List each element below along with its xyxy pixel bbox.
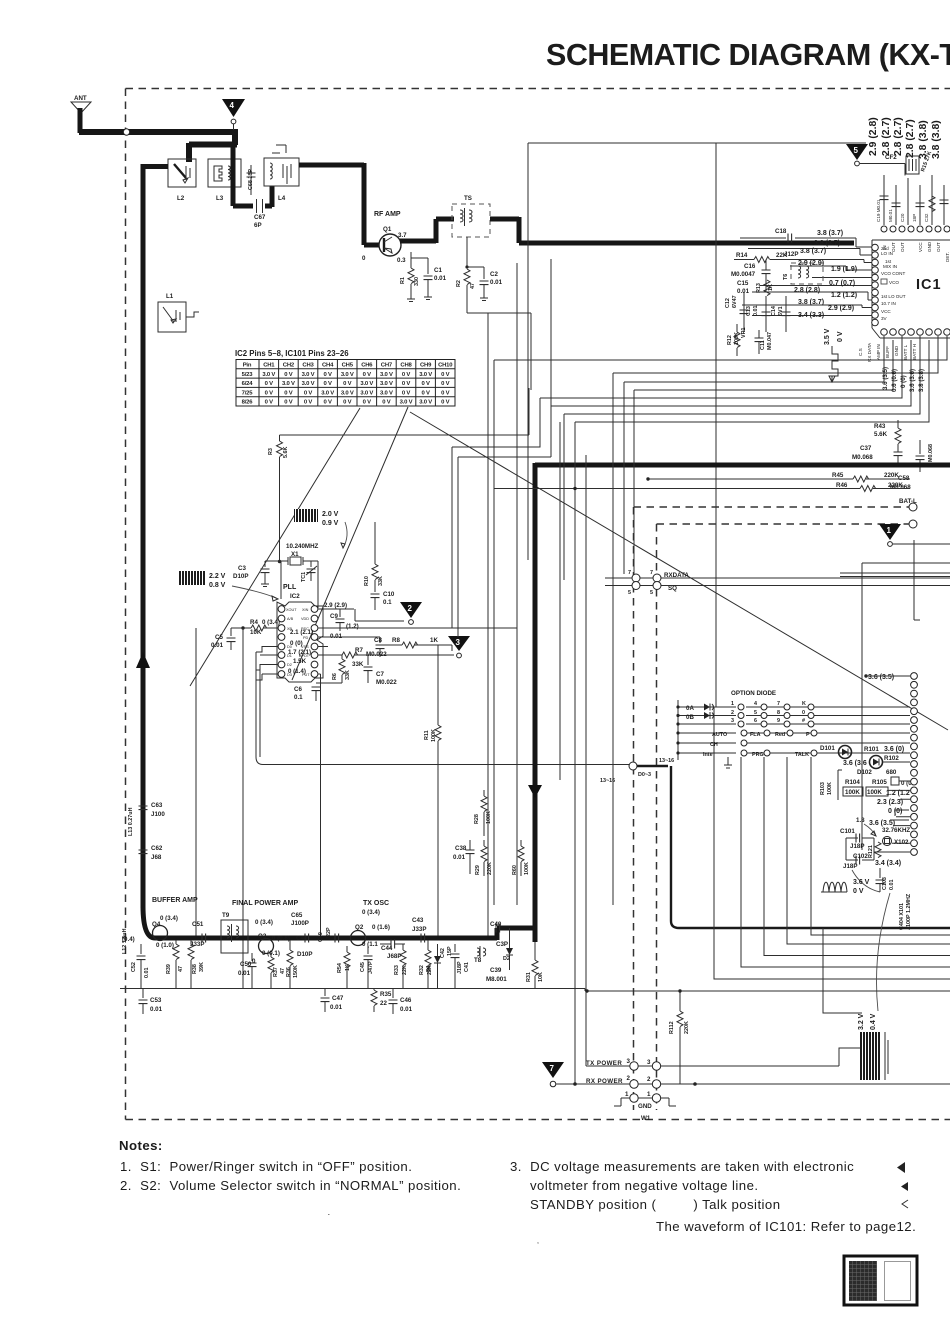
- svg-text:X102: X102: [894, 839, 909, 846]
- svg-text:D102: D102: [857, 769, 872, 776]
- svg-text:C39: C39: [490, 967, 502, 974]
- svg-text:0 (0): 0 (0): [290, 640, 303, 647]
- svg-text:C42: C42: [440, 948, 446, 958]
- svg-text:MIX IN: MIX IN: [883, 264, 897, 269]
- svg-text:3.0 V: 3.0 V: [380, 372, 393, 378]
- svg-text:C13: C13: [746, 306, 752, 316]
- svg-text:1st LO OUT: 1st LO OUT: [881, 294, 906, 299]
- svg-text:0 (3.4): 0 (3.4): [255, 919, 273, 926]
- svg-text:18P: 18P: [912, 214, 917, 222]
- svg-text:D10P: D10P: [297, 951, 312, 958]
- svg-text:3.6 (3.5): 3.6 (3.5): [869, 820, 895, 827]
- svg-text:1.2 (1.2): 1.2 (1.2): [831, 292, 857, 299]
- svg-text:IC2 Pins 5–8, IC101 Pins 23–26: IC2 Pins 5–8, IC101 Pins 23–26: [235, 349, 349, 358]
- svg-text:RX DATA: RX DATA: [867, 342, 872, 362]
- svg-text:R32: R32: [419, 965, 425, 975]
- svg-text:P: P: [806, 732, 810, 738]
- svg-text:2: 2: [731, 710, 734, 716]
- svg-text:CH2: CH2: [283, 363, 295, 369]
- svg-text:CH7: CH7: [381, 363, 393, 369]
- svg-text:2.8 (2.7): 2.8 (2.7): [905, 119, 916, 158]
- svg-text:J33P: J33P: [190, 941, 204, 948]
- svg-text:FLA: FLA: [750, 732, 761, 738]
- svg-text:C19 M0.01: C19 M0.01: [876, 199, 881, 222]
- svg-text:0 V: 0 V: [382, 400, 391, 406]
- svg-text:C53: C53: [150, 997, 162, 1004]
- svg-text:CH10: CH10: [438, 363, 453, 369]
- svg-text:J47P: J47P: [368, 961, 374, 974]
- svg-text:R103: R103: [820, 782, 826, 795]
- svg-text:A/B: A/B: [287, 617, 294, 621]
- svg-text:0 V: 0 V: [441, 381, 450, 387]
- svg-text:FINAL POWER AMP: FINAL POWER AMP: [232, 900, 298, 907]
- svg-text:100K: 100K: [431, 729, 437, 742]
- svg-text:5: 5: [628, 590, 631, 596]
- svg-text:The waveform of IC101: Refer t: The waveform of IC101: Refer to page12.: [656, 1219, 916, 1234]
- svg-text:0 V: 0 V: [402, 372, 411, 378]
- svg-text:SQ: SQ: [668, 585, 677, 592]
- svg-text:TX OSC: TX OSC: [363, 900, 389, 907]
- svg-text:8: 8: [777, 710, 780, 716]
- svg-text:C38: C38: [455, 845, 467, 852]
- svg-text:7: 7: [777, 701, 780, 707]
- svg-text:100K: 100K: [845, 789, 860, 796]
- svg-text:M0.068: M0.068: [852, 454, 873, 461]
- svg-text:CH8: CH8: [400, 363, 412, 369]
- svg-text:C12: C12: [725, 298, 731, 308]
- svg-text:R104: R104: [845, 779, 860, 786]
- svg-text:220K: 220K: [487, 862, 493, 875]
- svg-text:0.01: 0.01: [400, 1006, 413, 1013]
- svg-text:8/26: 8/26: [242, 400, 254, 406]
- svg-text:0 (1.1: 0 (1.1: [362, 941, 378, 948]
- svg-text:C48: C48: [296, 935, 308, 942]
- svg-text:0: 0: [362, 255, 366, 262]
- svg-text:3.6 (3.6: 3.6 (3.6: [843, 760, 867, 767]
- svg-text:0 V: 0 V: [402, 381, 411, 387]
- svg-text:1K: 1K: [345, 964, 351, 971]
- svg-text:TALK: TALK: [795, 752, 809, 758]
- svg-text:0 V: 0 V: [265, 400, 274, 406]
- svg-text:R102: R102: [884, 755, 899, 762]
- svg-text:100K: 100K: [524, 862, 530, 875]
- svg-text:C103: C103: [882, 877, 888, 890]
- svg-text:Q1: Q1: [383, 226, 392, 233]
- svg-text:3.0 V: 3.0 V: [400, 400, 413, 406]
- svg-text:PD: PD: [303, 636, 309, 640]
- svg-text:13~16: 13~16: [659, 758, 674, 764]
- svg-text:0 V: 0 V: [343, 381, 352, 387]
- svg-text:R39: R39: [166, 964, 172, 974]
- svg-text:33K: 33K: [378, 576, 384, 586]
- svg-text:2: 2: [647, 1076, 651, 1083]
- svg-text:0 (1.6): 0 (1.6): [372, 924, 390, 931]
- svg-text:0 V: 0 V: [323, 381, 332, 387]
- svg-text:0 V: 0 V: [363, 400, 372, 406]
- svg-text:C62: C62: [151, 845, 163, 852]
- svg-text:BUFF: BUFF: [885, 346, 890, 358]
- svg-text:0 V: 0 V: [323, 372, 332, 378]
- svg-text:CH5: CH5: [342, 363, 354, 369]
- svg-text:D0~3: D0~3: [638, 772, 651, 778]
- svg-text:C3: C3: [238, 565, 246, 572]
- svg-text:R37: R37: [273, 967, 279, 977]
- svg-text:R7: R7: [355, 647, 363, 654]
- svg-text:47: 47: [178, 966, 184, 972]
- svg-text:0.9 V: 0.9 V: [322, 520, 339, 527]
- svg-text:0A: 0A: [686, 705, 694, 712]
- svg-text:0 (1.0): 0 (1.0): [156, 942, 174, 949]
- svg-text:3.0 V: 3.0 V: [360, 390, 373, 396]
- svg-text:C45: C45: [360, 962, 366, 972]
- svg-text:0 V: 0 V: [441, 372, 450, 378]
- svg-text:100K: 100K: [486, 811, 492, 824]
- svg-text:0 V: 0 V: [441, 390, 450, 396]
- svg-text:R101: R101: [864, 746, 879, 753]
- svg-text:R1: R1: [400, 277, 406, 284]
- svg-text:VCO: VCO: [889, 280, 899, 285]
- svg-text:5/23: 5/23: [242, 372, 254, 378]
- svg-text:,: ,: [537, 1238, 539, 1245]
- svg-text:VDD: VDD: [301, 617, 309, 621]
- svg-text:1: 1: [647, 1091, 651, 1098]
- svg-text:32.76KHZ: 32.76KHZ: [882, 827, 910, 834]
- svg-text:3.0 V: 3.0 V: [419, 400, 432, 406]
- svg-text:C3P: C3P: [496, 941, 508, 948]
- svg-text:C20: C20: [900, 213, 905, 222]
- svg-text:3: 3: [456, 638, 461, 647]
- svg-text:R12: R12: [727, 335, 733, 345]
- svg-text:3.8 (3.7): 3.8 (3.7): [798, 299, 824, 306]
- svg-text:C50: C50: [240, 961, 252, 968]
- svg-text:220K: 220K: [684, 1021, 690, 1034]
- svg-text:R8: R8: [392, 637, 400, 644]
- svg-text:M0.0047: M0.0047: [731, 271, 756, 278]
- svg-text:6V47: 6V47: [732, 295, 738, 308]
- svg-text:D2: D2: [287, 663, 292, 667]
- svg-text:C9: C9: [330, 613, 338, 620]
- svg-text:0 V: 0 V: [265, 381, 274, 387]
- svg-text:CF2: CF2: [885, 154, 897, 161]
- svg-text:0.01: 0.01: [330, 1004, 343, 1011]
- svg-text:9: 9: [777, 718, 780, 724]
- svg-text:STANDBY position ( ) T: STANDBY position ( ) Talk position: [530, 1197, 781, 1212]
- svg-text:M0.068: M0.068: [928, 444, 934, 462]
- svg-text:0.01: 0.01: [889, 880, 895, 891]
- svg-text:SCHEMATIC DIAGRAM (KX-T: SCHEMATIC DIAGRAM (KX-T: [546, 38, 950, 72]
- svg-text:0.01: 0.01: [150, 1006, 163, 1013]
- svg-text:C7: C7: [376, 671, 384, 678]
- svg-text:3.6 V: 3.6 V: [853, 879, 870, 886]
- svg-text:3.5 V: 3.5 V: [824, 328, 831, 345]
- svg-text:5: 5: [650, 590, 653, 596]
- svg-text:0 V: 0 V: [304, 390, 313, 396]
- svg-text:3.0 V: 3.0 V: [419, 372, 432, 378]
- svg-text:1.2 (1.2: 1.2 (1.2: [886, 790, 910, 797]
- svg-text:J100P 1.2MHZ: J100P 1.2MHZ: [906, 893, 912, 930]
- svg-text:0 V: 0 V: [323, 400, 332, 406]
- svg-text:M0.047: M0.047: [767, 332, 773, 350]
- svg-text:Notes:: Notes:: [119, 1138, 163, 1153]
- svg-text:R35: R35: [380, 991, 392, 998]
- svg-text:0 (3.4): 0 (3.4): [160, 915, 178, 922]
- svg-text:T6: T6: [783, 274, 789, 280]
- svg-text:K: K: [802, 701, 806, 707]
- svg-text:0.01: 0.01: [490, 279, 503, 286]
- svg-text:C67: C67: [254, 214, 266, 221]
- svg-text:DET.: DET.: [945, 252, 950, 262]
- svg-text:100K: 100K: [827, 782, 833, 795]
- svg-text:R2: R2: [456, 280, 462, 287]
- svg-text:GND: GND: [894, 345, 899, 356]
- svg-text:GND: GND: [638, 1103, 652, 1110]
- svg-text:2.8 (2.7): 2.8 (2.7): [893, 117, 904, 156]
- svg-text:0.01: 0.01: [753, 306, 759, 317]
- svg-text:3.0 V: 3.0 V: [302, 381, 315, 387]
- svg-text:C6: C6: [294, 686, 302, 693]
- svg-text:2.9 (2.9): 2.9 (2.9): [324, 602, 347, 609]
- svg-text:39K: 39K: [199, 962, 205, 972]
- svg-text:150K: 150K: [293, 965, 299, 978]
- svg-text:R45: R45: [832, 472, 844, 479]
- svg-text:5.6K: 5.6K: [874, 431, 888, 438]
- svg-text:2: 2: [408, 604, 413, 613]
- svg-text:0.4 V: 0.4 V: [870, 1013, 877, 1030]
- svg-text:C43: C43: [412, 917, 424, 924]
- svg-text:3.8 (3.7): 3.8 (3.7): [817, 230, 843, 237]
- svg-text:CH9: CH9: [420, 363, 432, 369]
- svg-text:4: 4: [754, 701, 757, 707]
- svg-text:22K: 22K: [776, 252, 788, 259]
- svg-text:0 V: 0 V: [284, 372, 293, 378]
- svg-text:3V: 3V: [881, 316, 888, 321]
- svg-text:3.4 (3.4): 3.4 (3.4): [875, 860, 901, 867]
- svg-text:0 V: 0 V: [853, 888, 864, 895]
- svg-text:1. S1: Power/Ringer switch i: 1. S1: Power/Ringer switch in “OFF” posi…: [120, 1159, 412, 1174]
- svg-text:BATT H: BATT H: [912, 344, 917, 360]
- svg-text:CH6: CH6: [361, 363, 373, 369]
- svg-text:IC1: IC1: [916, 277, 942, 293]
- svg-text:220K: 220K: [884, 472, 899, 479]
- svg-text:1: 1: [731, 701, 734, 707]
- svg-text:0: 0: [252, 958, 256, 965]
- svg-text:C68 18P: C68 18P: [248, 169, 254, 190]
- svg-text:D1: D1: [426, 965, 432, 972]
- svg-text:PLL: PLL: [283, 584, 297, 591]
- svg-text:1.7 (2.1): 1.7 (2.1): [288, 649, 311, 656]
- svg-text:10.240MHZ: 10.240MHZ: [286, 543, 319, 550]
- svg-text:0.01: 0.01: [144, 968, 150, 979]
- svg-text:0 (0): 0 (0): [900, 375, 907, 388]
- svg-text:0.01: 0.01: [434, 275, 447, 282]
- svg-text:3.0 V: 3.0 V: [341, 390, 354, 396]
- svg-text:T8: T8: [474, 957, 482, 964]
- svg-text:XOUT: XOUT: [286, 608, 297, 612]
- svg-text:100K: 100K: [867, 789, 882, 796]
- svg-text:0: 0: [802, 710, 805, 716]
- svg-text:0 (3.4): 0 (3.4): [262, 619, 280, 626]
- svg-text:C37: C37: [860, 445, 872, 452]
- svg-text:R105: R105: [872, 779, 887, 786]
- svg-text:3.6 (3.6): 3.6 (3.6): [909, 369, 916, 392]
- svg-text:AMP IN: AMP IN: [876, 344, 881, 360]
- svg-text:3.0 V: 3.0 V: [380, 390, 393, 396]
- svg-text:J68: J68: [151, 854, 162, 861]
- svg-text:OUT: OUT: [900, 242, 905, 252]
- svg-text:BATT L: BATT L: [903, 344, 908, 360]
- svg-text:7/25: 7/25: [242, 390, 254, 396]
- svg-text:J68P: J68P: [387, 953, 401, 960]
- svg-text:7: 7: [550, 1064, 555, 1073]
- svg-text:0.01: 0.01: [211, 642, 224, 649]
- svg-text:IC2: IC2: [290, 593, 300, 600]
- svg-text:C404 X101: C404 X101: [899, 903, 905, 930]
- svg-text:0.6 (0.6): 0.6 (0.6): [891, 369, 898, 392]
- svg-text:Q2: Q2: [355, 924, 364, 931]
- svg-text:2.8 (2.7): 2.8 (2.7): [881, 117, 892, 156]
- svg-text:680: 680: [886, 769, 897, 776]
- svg-text:R46: R46: [836, 482, 848, 489]
- svg-text:C5: C5: [215, 634, 223, 641]
- svg-text:M8.001: M8.001: [486, 976, 507, 983]
- svg-text:RXDATA: RXDATA: [664, 572, 689, 579]
- svg-text:1: 1: [887, 526, 892, 535]
- svg-text:1.8: 1.8: [856, 817, 865, 824]
- svg-text:M0.01: M0.01: [888, 209, 893, 222]
- svg-text:0.01: 0.01: [238, 970, 251, 977]
- svg-text:0 V: 0 V: [284, 400, 293, 406]
- svg-text:R3: R3: [268, 448, 274, 455]
- svg-text:C.S: C.S: [858, 348, 863, 356]
- svg-text:L1: L1: [166, 293, 174, 300]
- svg-text:J18P: J18P: [843, 863, 857, 870]
- svg-text:3: 3: [731, 718, 734, 724]
- svg-text:T9: T9: [222, 912, 230, 919]
- svg-text:R54: R54: [337, 963, 343, 973]
- svg-text:0 V: 0 V: [304, 400, 313, 406]
- svg-text:C41: C41: [464, 962, 470, 972]
- svg-text:J18P: J18P: [457, 961, 463, 974]
- svg-text:VCC: VCC: [918, 242, 923, 252]
- svg-text:C16: C16: [744, 263, 756, 270]
- svg-text:J100: J100: [151, 811, 165, 818]
- svg-text:5: 5: [754, 710, 757, 716]
- svg-text:CH3: CH3: [302, 363, 314, 369]
- svg-text:C63: C63: [151, 802, 163, 809]
- svg-text:0B: 0B: [686, 714, 694, 721]
- svg-text:C101: C101: [840, 828, 855, 835]
- svg-text:CH1: CH1: [263, 363, 275, 369]
- svg-text:3.0 V: 3.0 V: [341, 372, 354, 378]
- svg-text:6V1: 6V1: [778, 306, 784, 316]
- svg-text:0.7 (0.7): 0.7 (0.7): [829, 280, 855, 287]
- svg-text:L2: L2: [177, 195, 185, 202]
- svg-text:ANT: ANT: [74, 95, 87, 102]
- svg-text:L13 0.27uH: L13 0.27uH: [128, 807, 134, 836]
- svg-text:3.6 (3.5): 3.6 (3.5): [882, 367, 889, 390]
- svg-text:1: 1: [625, 1091, 629, 1098]
- svg-text:W1: W1: [641, 1115, 651, 1122]
- svg-text:R38: R38: [192, 964, 198, 974]
- svg-text:R13: R13: [756, 283, 762, 293]
- svg-text:0.01: 0.01: [453, 854, 466, 861]
- svg-text:0 V: 0 V: [284, 390, 293, 396]
- svg-text:330: 330: [414, 277, 420, 286]
- svg-text:C32: C32: [924, 213, 929, 222]
- svg-text:5.6K: 5.6K: [283, 447, 289, 458]
- svg-text:C102: C102: [853, 853, 868, 860]
- svg-text:0.1: 0.1: [294, 694, 303, 701]
- svg-text:R33: R33: [394, 965, 400, 975]
- svg-text:J18P: J18P: [850, 843, 864, 850]
- svg-text:R4: R4: [250, 619, 258, 626]
- svg-text:3. DC voltage measurements ar: 3. DC voltage measurements are taken wit…: [510, 1159, 854, 1174]
- svg-text:D10P: D10P: [233, 573, 248, 580]
- svg-text:2.8 (2.8): 2.8 (2.8): [794, 287, 820, 294]
- svg-text:0.8 V: 0.8 V: [209, 582, 226, 589]
- svg-text:0 (3.4): 0 (3.4): [362, 909, 380, 916]
- svg-text:5: 5: [854, 146, 859, 155]
- svg-text:VR1: VR1: [741, 328, 747, 339]
- svg-text:R10: R10: [364, 576, 370, 586]
- svg-text:3.0 V: 3.0 V: [360, 381, 373, 387]
- svg-text:10K: 10K: [250, 629, 262, 636]
- svg-text:R29: R29: [475, 865, 481, 875]
- svg-text:GND: GND: [927, 241, 932, 252]
- svg-text:3.4 (3.3): 3.4 (3.3): [798, 312, 824, 319]
- svg-text:BUFFER AMP: BUFFER AMP: [152, 897, 198, 904]
- svg-text:Pin: Pin: [243, 363, 252, 369]
- svg-text:3.8 (3.8): 3.8 (3.8): [918, 369, 925, 392]
- svg-text:3: 3: [647, 1059, 651, 1066]
- svg-text:0 V: 0 V: [421, 390, 430, 396]
- svg-text:0 V: 0 V: [421, 381, 430, 387]
- svg-text:4: 4: [230, 101, 235, 110]
- svg-text:7: 7: [650, 570, 653, 576]
- svg-text:3.0 V: 3.0 V: [282, 381, 295, 387]
- svg-text:3.0 V: 3.0 V: [302, 372, 315, 378]
- svg-text:3.0 V: 3.0 V: [380, 381, 393, 387]
- svg-text:0 (1.4): 0 (1.4): [288, 668, 306, 675]
- svg-text:3.6 (3.5): 3.6 (3.5): [868, 674, 894, 681]
- svg-text:10.7 IN: 10.7 IN: [881, 301, 896, 306]
- svg-text:0 V: 0 V: [343, 400, 352, 406]
- svg-text:R121: R121: [868, 845, 874, 858]
- svg-text:Inte: Inte: [703, 752, 713, 758]
- svg-text:PRG: PRG: [752, 752, 764, 758]
- svg-text:LO IN: LO IN: [881, 251, 893, 256]
- svg-text:2. S2: Volume Selector switc: 2. S2: Volume Selector switch in “NORMAL…: [120, 1178, 461, 1193]
- svg-text:R11: R11: [424, 730, 430, 740]
- svg-text:1.9 (1.9): 1.9 (1.9): [831, 266, 857, 273]
- svg-text:L3: L3: [216, 195, 224, 202]
- svg-text:6/24: 6/24: [242, 381, 254, 387]
- svg-text:OUT: OUT: [936, 242, 941, 252]
- svg-text:RF AMP: RF AMP: [374, 211, 401, 218]
- svg-text:C14: C14: [771, 306, 777, 316]
- svg-text:C15: C15: [737, 280, 749, 287]
- svg-text:2: 2: [627, 1075, 631, 1082]
- svg-text:3.0 V: 3.0 V: [262, 372, 275, 378]
- svg-text:1K: 1K: [430, 637, 438, 644]
- svg-text:C46: C46: [400, 997, 412, 1004]
- svg-text:R31: R31: [526, 972, 532, 982]
- svg-text:33K: 33K: [352, 661, 364, 668]
- svg-text:J100P: J100P: [291, 920, 309, 927]
- svg-text:3.8 (3.7): 3.8 (3.7): [814, 240, 840, 247]
- svg-text:22K: 22K: [402, 965, 408, 975]
- svg-text:3.0 V: 3.0 V: [321, 390, 334, 396]
